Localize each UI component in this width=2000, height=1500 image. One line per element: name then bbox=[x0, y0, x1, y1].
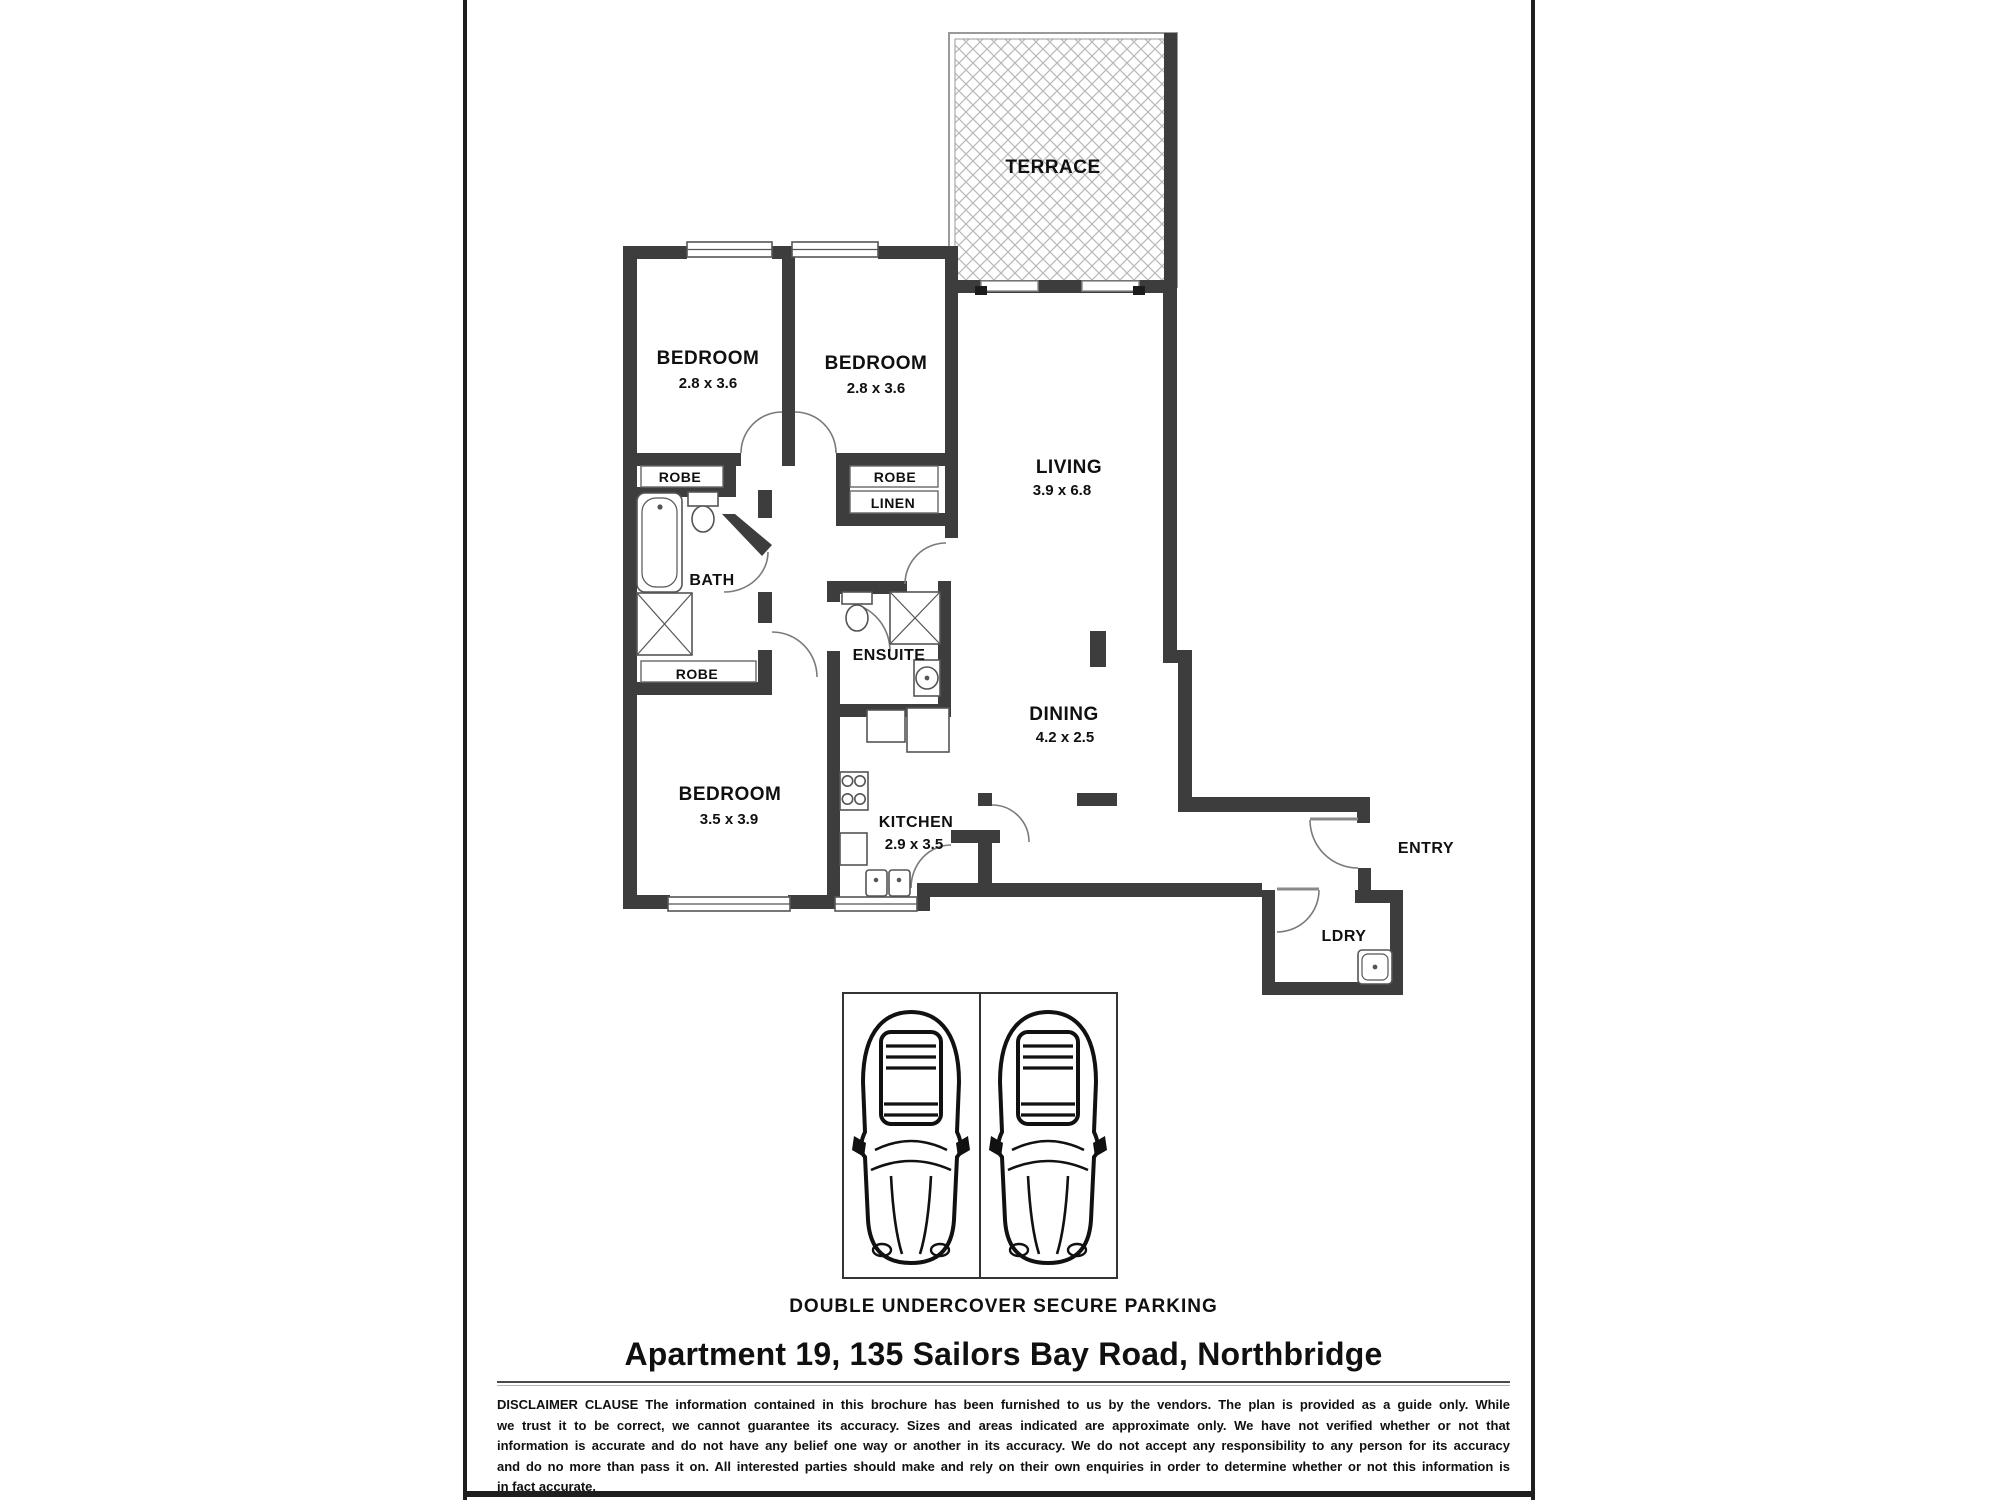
disclaimer-line: and do no more than pass it on. All inte… bbox=[497, 1457, 1510, 1478]
bedroom3-dims: 3.5 x 3.9 bbox=[700, 811, 758, 828]
window bbox=[835, 897, 917, 911]
disclaimer-line: in fact accurate. bbox=[497, 1477, 1510, 1498]
living-dims: 3.9 x 6.8 bbox=[1033, 482, 1091, 499]
door-arc bbox=[1310, 820, 1358, 868]
robe1-label: ROBE bbox=[659, 469, 701, 485]
door-arc bbox=[905, 543, 946, 584]
laundry-label: LDRY bbox=[1322, 928, 1367, 945]
robe2-label: ROBE bbox=[874, 469, 916, 485]
dining-dims: 4.2 x 2.5 bbox=[1036, 729, 1094, 746]
door-arc bbox=[741, 412, 782, 453]
door-arc bbox=[795, 412, 836, 453]
shower bbox=[637, 593, 692, 655]
wall-stub bbox=[1077, 793, 1117, 806]
door-arc bbox=[772, 632, 817, 677]
bedroom3-label: BEDROOM bbox=[679, 784, 782, 805]
robe3-label: ROBE bbox=[676, 666, 718, 682]
floorplan-page: TERRACE bbox=[0, 0, 2000, 1500]
disclaimer-line: information is accurate and do not have … bbox=[497, 1436, 1510, 1457]
stove-cooktop bbox=[840, 772, 868, 810]
toilet bbox=[842, 592, 872, 631]
fridge bbox=[867, 710, 905, 742]
entry-label: ENTRY bbox=[1398, 840, 1454, 857]
kitchen-label: KITCHEN bbox=[879, 814, 954, 831]
window bbox=[687, 242, 772, 257]
bath-label: BATH bbox=[689, 572, 734, 589]
toilet bbox=[688, 492, 718, 532]
window bbox=[792, 242, 878, 257]
ensuite-label: ENSUITE bbox=[853, 647, 926, 664]
shower bbox=[890, 592, 940, 644]
bedroom2-dims: 2.8 x 3.6 bbox=[847, 380, 905, 397]
linen-label: LINEN bbox=[871, 495, 916, 511]
dining-label: DINING bbox=[1029, 704, 1099, 725]
window bbox=[668, 897, 790, 911]
terrace-label: TERRACE bbox=[1005, 157, 1100, 178]
terrace-right-wall bbox=[1164, 33, 1177, 287]
disclaimer-line: we trust it to be correct, we cannot gua… bbox=[497, 1416, 1510, 1437]
pantry bbox=[907, 708, 949, 752]
laundry-tub bbox=[1358, 950, 1392, 984]
bench bbox=[840, 833, 867, 865]
bathtub bbox=[637, 493, 682, 592]
page-title: Apartment 19, 135 Sailors Bay Road, Nort… bbox=[497, 1336, 1510, 1373]
room-terrace: TERRACE bbox=[949, 33, 1177, 295]
parking-spaces bbox=[843, 993, 1117, 1278]
parking-caption: DOUBLE UNDERCOVER SECURE PARKING bbox=[497, 1296, 1510, 1318]
kitchen-dims: 2.9 x 3.5 bbox=[885, 836, 943, 853]
disclaimer-line: DISCLAIMER CLAUSE The information contai… bbox=[497, 1395, 1510, 1416]
bedroom1-label: BEDROOM bbox=[657, 348, 760, 369]
ensuite-fixtures bbox=[842, 592, 940, 696]
bedroom2-label: BEDROOM bbox=[825, 353, 928, 374]
door-arc bbox=[1277, 890, 1319, 932]
title-divider bbox=[497, 1381, 1510, 1386]
floorplan-drawing: TERRACE bbox=[0, 0, 2000, 1500]
kitchen-fixtures bbox=[840, 708, 949, 896]
living-label: LIVING bbox=[1036, 457, 1102, 478]
bedroom1-dims: 2.8 x 3.6 bbox=[679, 375, 737, 392]
disclaimer: DISCLAIMER CLAUSE The information contai… bbox=[497, 1395, 1510, 1498]
wall-stub bbox=[1090, 631, 1106, 667]
kitchen-sink bbox=[866, 870, 910, 896]
vanity-basin bbox=[914, 660, 940, 696]
